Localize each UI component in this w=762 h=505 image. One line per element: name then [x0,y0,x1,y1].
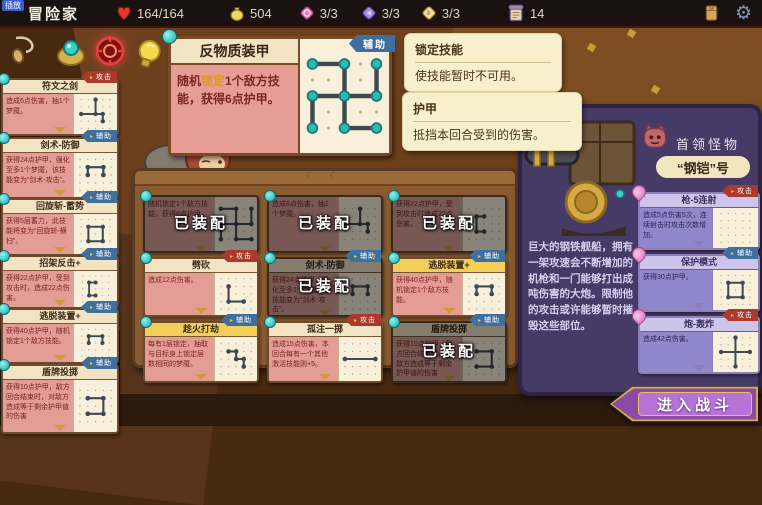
card-tag: 攻击 [81,71,117,83]
card-desc: 获得30点护甲。 [640,270,712,310]
boss-name-pill: “钢铠”号 [656,156,750,178]
boss-devil-icon [640,122,670,155]
card-desc: 获得5层蓄力，此技能将变为“回旋斩-横扫”。 [3,214,73,254]
highlighted-keyword: 锁定 [201,74,225,88]
panel-rail: ☾ ☾ [135,171,515,186]
card-tag: 攻击 [345,314,381,326]
equipped-label: 已装配 [391,195,507,249]
sidebar-card-rune-sword[interactable]: 攻击 符文之剑 造成6点伤害，抽1个梦魇。 [1,78,119,132]
card-desc: 获得10点护甲，敌方回合结束时，对敌方造成等于剩余护甲值的伤害 [3,380,73,432]
card-shape-grid [712,208,758,248]
tooltip-divider [415,62,551,63]
boss-skill-protect-mode[interactable]: 辅助 保护模式 获得30点护甲。 [638,254,760,308]
card-tag: 攻击 [722,185,758,197]
card-desc: 获得40点护甲，随机锁定1个敌方技能。 [393,273,462,315]
loadout-card-antimatter-armor[interactable]: 随机锁定1个敌方技能，获得6点护甲。 已装配 [143,195,259,249]
card-shape-grid [712,270,758,310]
card-tag: 辅助 [81,248,117,260]
lightbulb-trinket-icon[interactable] [132,38,166,79]
skill-preview-card: 辅助 反物质装甲 随机锁定1个敌方技能，获得6点护甲。 [168,36,392,150]
card-tag: 攻击 [221,250,257,262]
loadout-card-sword-defense[interactable]: 辅助 剑术-防御 获得24点护甲，强化至多1个梦魇，该技能变为“剑术-攻击”。 … [267,257,383,313]
loadout-card-cleave[interactable]: 攻击 劈砍 造成12点伤害。 [143,257,259,313]
pink-gem-icon [298,4,316,22]
loadout-card-parry-counter[interactable]: 获得22点护甲，受到攻击时造成22点伤害。 已装配 [391,195,507,249]
preview-card-title: 反物质装甲 [171,39,298,65]
relic2-stat: 3/3 [360,4,400,22]
tooltip-divider [413,121,571,122]
relic3-stat: 3/3 [420,4,460,22]
card-desc: 造成15点伤害，本回合每有一个其他激活技能则+5。 [269,337,338,381]
gem-icon [264,316,276,328]
tooltip-body: 使技能暂时不可用。 [415,67,551,84]
money-bag-icon [228,4,246,22]
loadout-card-all-in[interactable]: 攻击 孤注一掷 造成15点伤害，本回合每有一个其他激活技能则+5。 [267,321,383,379]
scroll-icon [506,3,526,23]
tooltip-title: 护甲 [413,100,571,117]
equipped-label: 已装配 [143,195,259,249]
card-desc: 每有1层锁定，抽取与目标身上锁定层数相同的梦魇。 [145,337,214,381]
card-shape-grid [73,94,117,134]
recording-overlay-badge: 插放 [2,0,24,11]
card-tag: 辅助 [81,191,117,203]
boss-skill-list: 攻击 枪-5连射 造成5点伤害5次，连续射击时攻击次数增加。 辅助 保护模式 获… [638,192,760,370]
card-desc: 造成5点伤害5次，连续射击时攻击次数增加。 [640,208,712,248]
sidebar-card-sword-defense[interactable]: 辅助 剑术-防御 获得24点护甲，强化至多1个梦魇，该技能变为“剑术-攻击”。 [1,137,119,195]
boss-type-label: 首领怪物 [676,134,740,153]
gem-icon [140,252,152,264]
card-shape-grid [73,324,117,362]
card-shape-grid [214,337,257,381]
card-shape-grid [338,337,381,381]
gold-stat: 504 [228,4,272,22]
card-tag: 攻击 [722,309,758,321]
enter-battle-button[interactable]: 进入战斗 [610,386,758,422]
equipped-label: 已装配 [267,257,383,313]
card-desc: 造成42点伤害。 [640,332,712,372]
card-tag: 辅助 [81,301,117,313]
relic3-count: 3/3 [442,6,460,21]
boss-skill-gun-burst[interactable]: 攻击 枪-5连射 造成5点伤害5次，连续射击时攻击次数增加。 [638,192,760,246]
equipped-skills-panel: ☾ ☾ 随机锁定1个敌方技能，获得6点护甲。 已装配 造成6点伤害，抽1个梦魇。… [132,168,518,368]
deck-count: 14 [530,6,544,21]
card-shape-grid [462,273,505,315]
purple-gem-icon [360,4,378,22]
gem-icon [140,316,152,328]
red-rune-trinket-icon[interactable] [92,32,128,75]
loadout-card-opportunist[interactable]: 辅助 趁火打劫 每有1层锁定，抽取与目标身上锁定层数相同的梦魇。 [143,321,259,379]
card-shape-grid [712,332,758,372]
relic2-count: 3/3 [382,6,400,21]
heart-icon [115,4,133,22]
top-status-bar: 冒险家 164/164 504 3/3 3/3 3/3 14 ⚙ [0,0,762,28]
equipped-label: 已装配 [391,321,507,379]
deck-stat: 14 [506,3,544,23]
orb-trinket-icon[interactable] [56,38,86,71]
hp-stat: 164/164 [115,4,184,22]
loadout-card-rune-sword[interactable]: 造成6点伤害，抽1个梦魇。 已装配 [267,195,383,249]
sidebar-card-spin-slash[interactable]: 辅助 回旋斩-蓄势 获得5层蓄力，此技能将变为“回旋斩-横扫”。 [1,198,119,252]
card-shape-grid [214,273,257,315]
button-label: 进入战斗 [638,392,752,416]
gear-icon[interactable]: ⚙ [735,4,752,23]
card-shape-grid [73,380,117,432]
yellow-gem-icon [420,4,438,22]
boss-description: 巨大的钢铁舰船，拥有一架攻速会不断增加的机枪和一门能够打出成吨伤害的大炮。限制他… [528,240,638,335]
card-tag: 辅助 [221,314,257,326]
card-desc: 造成6点伤害，抽1个梦魇。 [3,94,73,134]
card-tag: 辅助 [722,247,758,259]
tooltip-armor: 护甲 抵挡本回合受到的伤害。 [402,92,582,151]
card-desc: 造成12点伤害。 [145,273,214,315]
gem-icon [388,252,400,264]
preview-shape-grid [300,39,389,153]
gem-icon [162,29,177,44]
gold-value: 504 [250,6,272,21]
player-name: 冒险家 [28,3,79,24]
sidebar-card-parry-counter[interactable]: 辅助 招架反击+ 获得22点护甲，受到攻击时，造成22点伤害。 [1,255,119,305]
preview-card-desc: 随机锁定1个敌方技能，获得6点护甲。 [171,65,298,153]
sidebar-card-shield-throw[interactable]: 辅助 盾牌投掷 获得10点护甲，敌方回合结束时，对敌方造成等于剩余护甲值的伤害 [1,364,119,430]
loadout-card-shield-throw[interactable]: 辅助 盾牌投掷 获得10点护甲，敌方回合结束时，对敌方造成等于剩余护甲值的伤害 … [391,321,507,379]
card-tag: 辅助 [469,250,505,262]
sidebar-card-escape-device[interactable]: 辅助 逃脱装置+ 获得40点护甲，随机锁定1个敌方技能。 [1,308,119,360]
relic1-stat: 3/3 [298,4,338,22]
card-desc: 获得22点护甲，受到攻击时，造成22点伤害。 [3,271,73,307]
tooltip-lock-skill: 锁定技能 使技能暂时不可用。 [404,33,562,92]
tooltip-body: 抵挡本回合受到的伤害。 [413,126,571,143]
card-shape-grid [73,153,117,197]
necklace-trinket-icon[interactable] [8,34,40,71]
hp-value: 164/164 [137,6,184,21]
equipped-label: 已装配 [267,195,383,249]
card-tag: 辅助 [81,130,117,142]
preview-card-tag: 辅助 [349,35,395,52]
card-desc: 获得40点护甲，随机锁定1个敌方技能。 [3,324,73,362]
tooltip-title: 锁定技能 [415,41,551,58]
card-tag: 辅助 [81,357,117,369]
boss-skill-cannon-bombard[interactable]: 攻击 炮-轰炸 造成42点伤害。 [638,316,760,370]
card-desc: 获得24点护甲，强化至多1个梦魇，该技能变为“剑术-攻击”。 [3,153,73,197]
loadout-card-escape-device[interactable]: 辅助 逃脱装置+ 获得40点护甲，随机锁定1个敌方技能。 [391,257,507,313]
package-icon[interactable] [704,3,719,23]
relic1-count: 3/3 [320,6,338,21]
